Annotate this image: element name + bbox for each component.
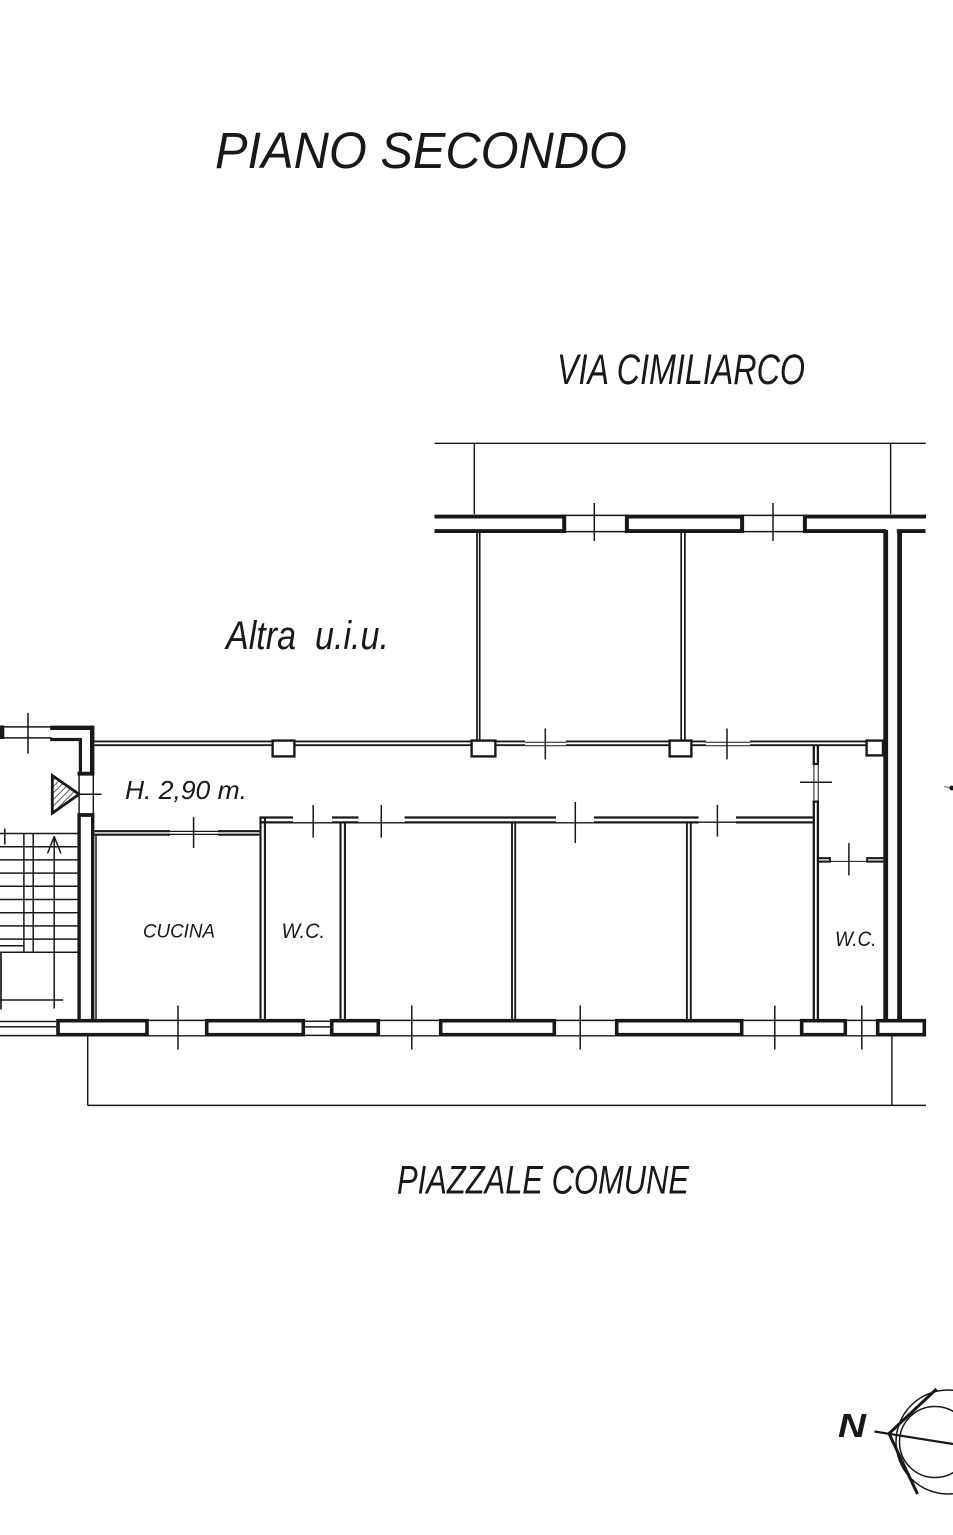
svg-text:W.C.: W.C. <box>835 928 877 951</box>
svg-text:W.C.: W.C. <box>282 920 326 943</box>
svg-text:N: N <box>838 1407 867 1444</box>
svg-text:VIA CIMILIARCO: VIA CIMILIARCO <box>557 346 805 394</box>
svg-text:Altra: Altra <box>224 614 296 658</box>
svg-text:u.i.u.: u.i.u. <box>315 614 389 658</box>
svg-text:PIANO SECONDO: PIANO SECONDO <box>215 122 627 179</box>
svg-text:CUCINA: CUCINA <box>143 921 215 943</box>
svg-text:H. 2,90 m.: H. 2,90 m. <box>125 775 247 805</box>
svg-text:PIAZZALE COMUNE: PIAZZALE COMUNE <box>397 1159 690 1203</box>
